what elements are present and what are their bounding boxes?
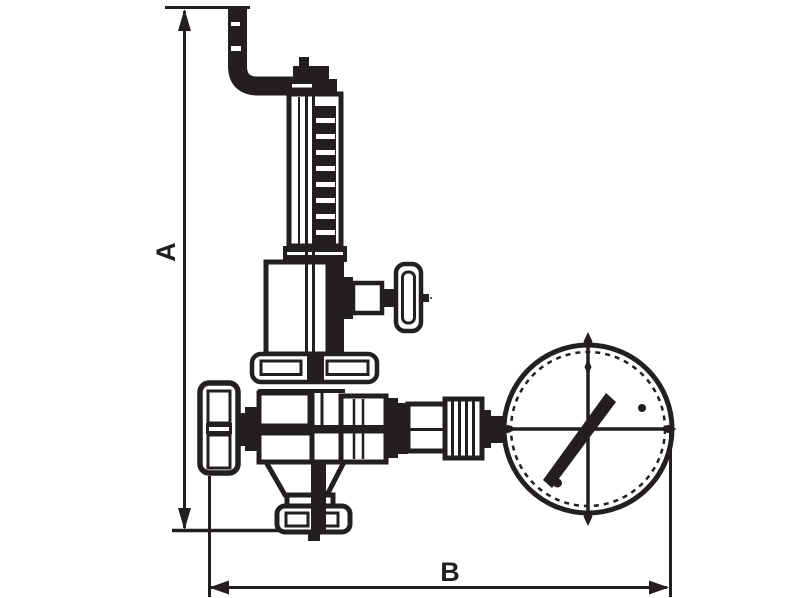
gauge-tick-bottom [584,507,593,526]
union-flange-plate [386,398,398,458]
gauge-zero-mark [585,359,592,375]
cap-highlight [292,84,312,88]
test-valve-axle-stub [421,294,429,302]
spring-gap [316,166,335,171]
union-block [408,404,445,451]
union-nut [445,399,482,458]
handwheel-hub-slit [209,427,229,431]
union-step [482,410,491,448]
spring-gap [316,230,335,235]
body-upper-block [259,393,312,426]
dim-a-label: A [151,242,181,262]
technical-drawing-page: A B [0,0,800,598]
discharge-pipe-run [238,9,299,86]
gauge-needle [543,393,616,488]
spring-gap [316,150,335,155]
test-valve-body [353,283,382,313]
adjusting-cap-top [293,66,329,80]
dim-b-arrow-right-icon [649,581,669,595]
pipe-weld-mark [231,22,240,26]
body-skirt [266,462,344,495]
handwheel [200,383,259,473]
spring-gap [316,198,335,203]
pipe-weld-mark [231,46,241,51]
housing-side-boss [328,262,344,354]
valve-dimension-drawing: A B [0,0,800,598]
housing-box [266,262,328,354]
valve-body [247,391,390,541]
coil-spring [315,106,336,246]
pressure-gauge [500,332,677,526]
gauge-union [386,398,506,458]
spring-gap [316,182,335,187]
test-valve [336,264,434,331]
gauge-stop-pin [553,479,562,488]
spring-gap [316,134,335,139]
gland-flange [252,354,377,382]
gauge-tick-top [584,332,593,351]
spring-gap [316,214,335,219]
adjusting-screw-tip [299,57,309,67]
inlet-stub [308,530,320,541]
body-lower-block [259,433,312,462]
spring-gap [316,118,335,123]
dim-a-arrow-down-icon [178,508,191,530]
lower-stem [311,462,326,530]
gland-stem-hub [307,354,324,382]
dim-b-label: B [440,557,460,587]
test-valve-knob [396,264,421,331]
dim-a-arrow-up-icon [178,9,191,31]
gauge-scale-dot [638,404,646,412]
discharge-pipe [231,9,298,86]
dim-b-arrow-left-icon [209,581,229,595]
handwheel-stem-boss [245,407,259,451]
